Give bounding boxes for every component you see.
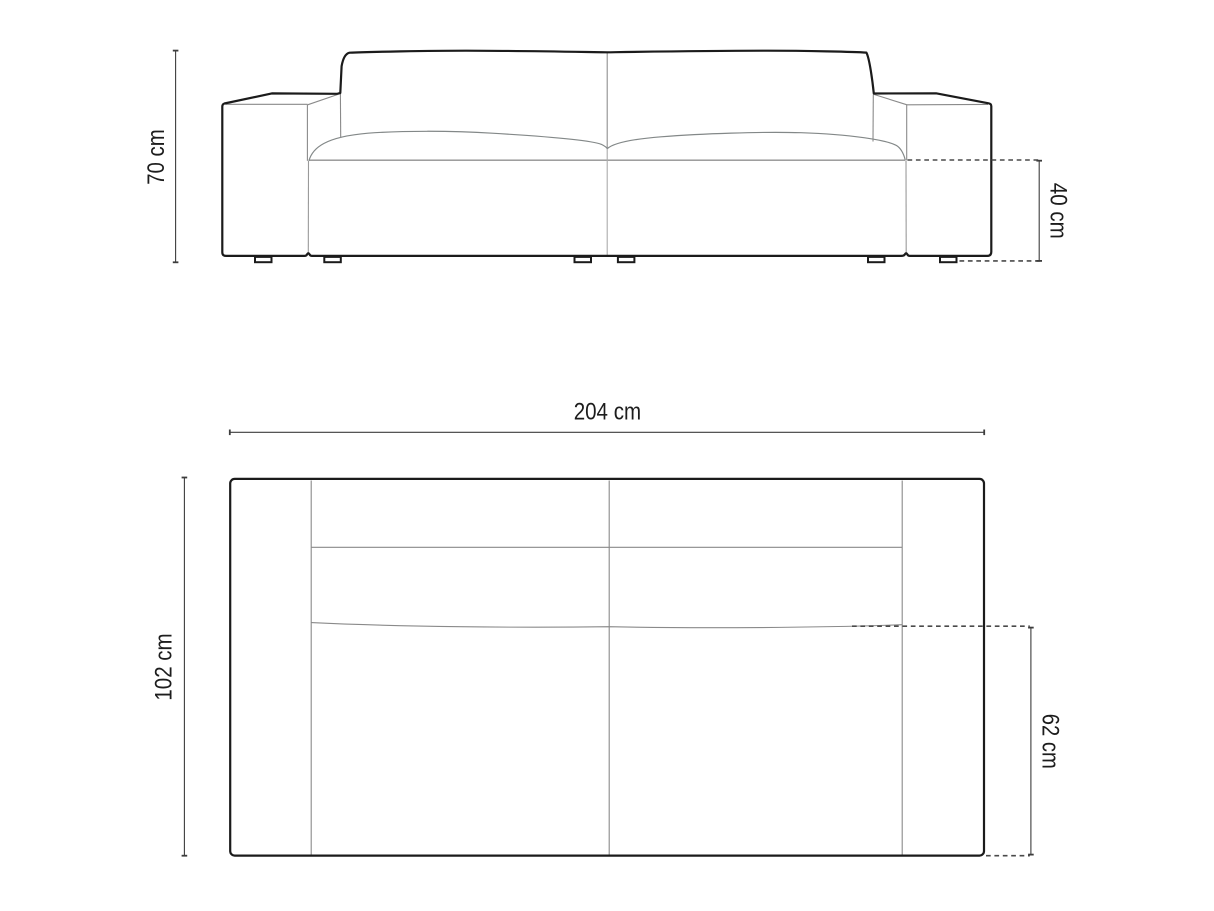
svg-text:40 cm: 40 cm [1044,183,1071,239]
svg-text:70 cm: 70 cm [143,129,170,185]
svg-text:204 cm: 204 cm [574,399,641,426]
svg-text:62 cm: 62 cm [1037,714,1064,769]
svg-text:102 cm: 102 cm [150,633,177,700]
